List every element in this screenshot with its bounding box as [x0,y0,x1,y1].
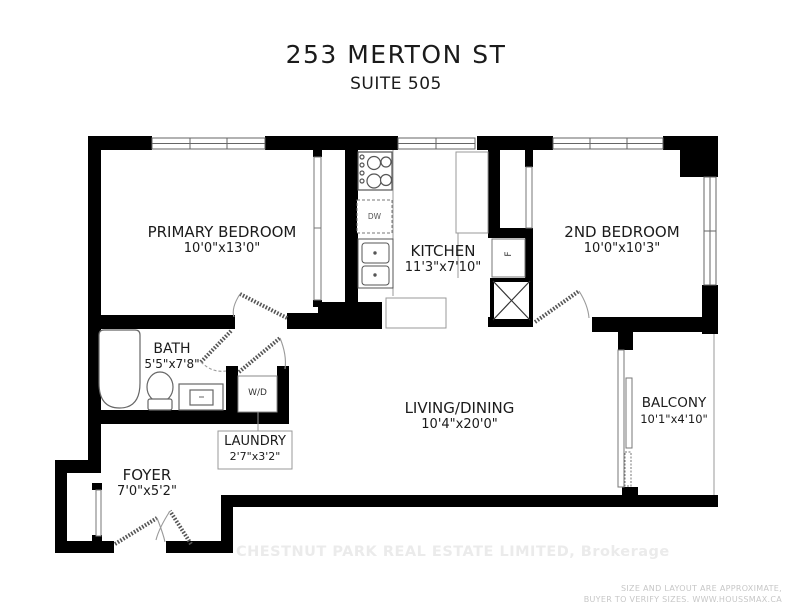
entry-door-leaf [115,518,157,544]
room-dims: 5'5"x7'8" [132,358,212,372]
wall-segment [92,483,102,490]
room-name: BATH [132,341,212,357]
wall-segment [313,300,322,307]
room-dims: 10'4"x20'0" [377,418,542,433]
stove-burner [367,174,381,188]
size-disclaimer: SIZE AND LAYOUT ARE APPROXIMATE, BUYER T… [584,583,782,605]
shaft-box [492,280,531,321]
room-dims: 7'0"x5'2" [102,485,192,500]
door-arc [579,291,589,318]
wall-segment [88,315,235,329]
stove [358,152,392,190]
wall-segment [618,320,633,350]
room-name: KITCHEN [383,243,503,260]
counter-peninsula [386,298,446,328]
door-leaf [239,338,280,372]
brokerage-watermark: CHESTNUT PARK REAL ESTATE LIMITED, Broke… [236,544,670,560]
stove-burner [368,157,381,170]
stove-knob [360,171,364,175]
room-name: LIVING/DINING [377,400,542,417]
room-name: 2ND BEDROOM [552,224,692,241]
floorplan-page: 253 MERTON ST SUITE 505 [0,0,792,612]
room-name: LAUNDRY [218,435,292,450]
stove-burner [381,175,392,186]
wall-segment [55,541,114,553]
floorplan-drawing [0,0,792,612]
sink-drain [374,252,376,254]
room-label-kitchen: KITCHEN 11'3"x7'10" [383,243,503,276]
balcony-door-panel [625,452,631,486]
wall-segment [287,313,318,329]
washer-dryer-label: W/D [238,388,277,398]
room-label-living-dining: LIVING/DINING 10'4"x20'0" [377,400,542,433]
wall-segment [221,495,718,507]
sliding-closet-door [526,167,532,228]
sink-drain [374,274,376,276]
closet-door-panel [96,490,101,536]
door-arc [280,338,285,369]
room-dims: 11'3"x7'10" [383,261,503,276]
stove-knob [360,155,364,159]
disclaimer-line: BUYER TO VERIFY SIZES. WWW.HOUSSMAX.CA [584,594,782,605]
room-label-second-bedroom: 2ND BEDROOM 10'0"x10'3" [552,224,692,257]
counter-right [456,152,488,233]
wall-segment [477,136,553,150]
toilet-tank [148,399,172,410]
room-name: BALCONY [614,396,734,412]
stove-knob [360,163,364,167]
wall-segment [318,302,382,329]
wall-segment [592,317,718,332]
wall-segment [265,136,398,150]
dishwasher-label: DW [357,212,392,221]
wall-segment [525,150,533,167]
wall-segment [622,487,638,499]
door-leaf [240,294,287,318]
room-name: FOYER [102,467,192,484]
room-label-bath: BATH 5'5"x7'8" [132,341,212,372]
kitchen-counters [386,150,488,328]
stove-knob [360,179,364,183]
room-dims: 10'1"x4'10" [614,413,734,426]
stove-burner [381,157,391,167]
door-leaf [535,291,579,322]
toilet-bowl [147,372,173,402]
wall-segment [55,460,67,553]
room-dims: 10'0"x10'3" [552,242,692,257]
wall-segment [345,150,358,302]
room-dims: 2'7"x3'2" [218,451,292,464]
wall-segment [488,150,500,233]
fridge-label: F [504,239,514,269]
room-label-laundry: LAUNDRY 2'7"x3'2" [218,435,292,464]
wall-segment [313,150,322,157]
door-leaf [170,511,191,544]
room-label-balcony: BALCONY 10'1"x4'10" [614,396,734,426]
room-label-foyer: FOYER 7'0"x5'2" [102,467,192,500]
door-arc [233,294,240,317]
wall-segment [680,150,718,177]
wall-segment [88,410,238,424]
disclaimer-line: SIZE AND LAYOUT ARE APPROXIMATE, [584,583,782,594]
room-dims: 10'0"x13'0" [122,242,322,257]
room-label-primary-bedroom: PRIMARY BEDROOM 10'0"x13'0" [122,224,322,257]
room-name: PRIMARY BEDROOM [122,224,322,241]
wall-segment [663,136,718,150]
